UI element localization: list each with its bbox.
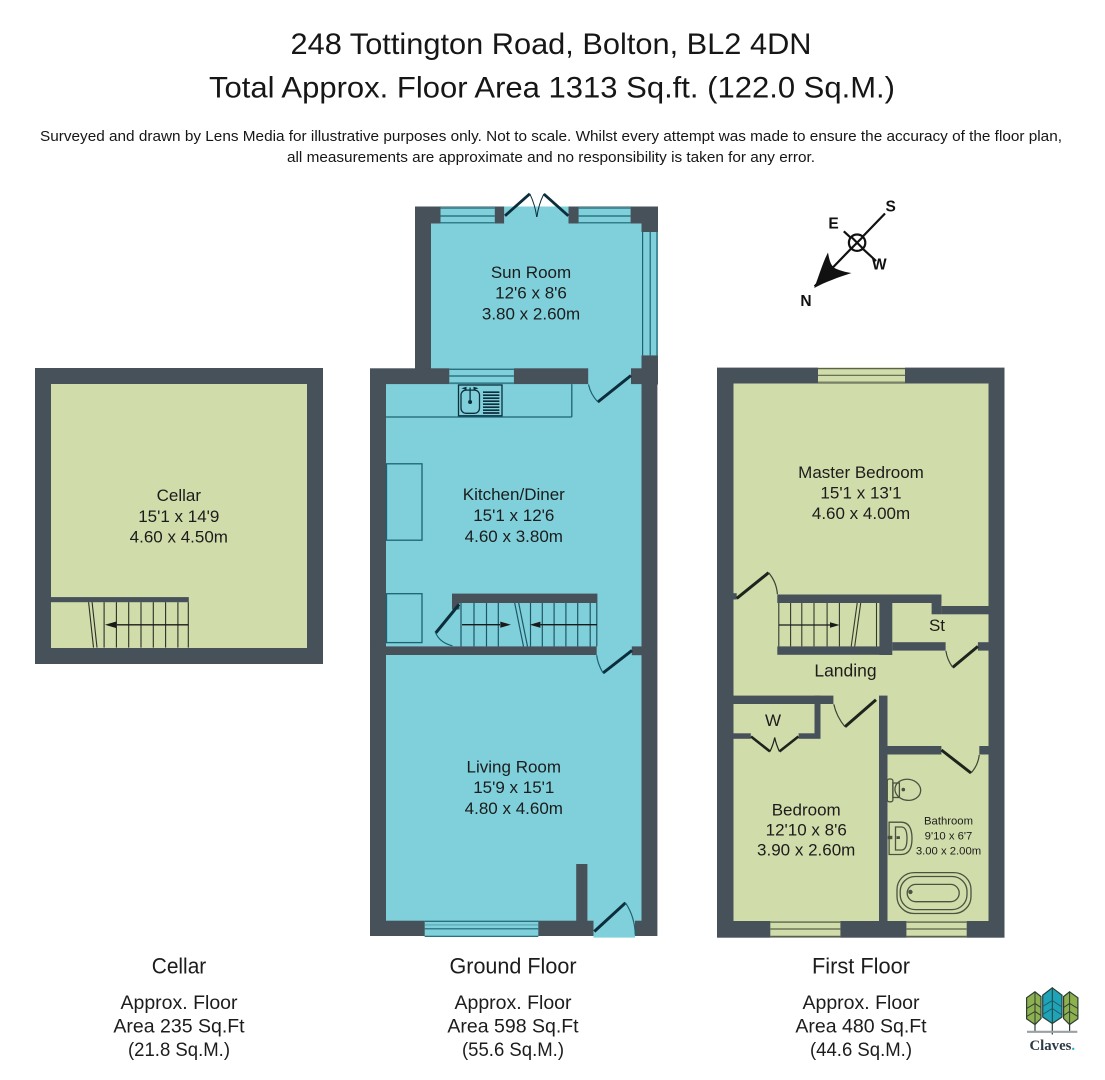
svg-text:3.80 x 2.60m: 3.80 x 2.60m — [482, 304, 580, 323]
svg-text:Master Bedroom: Master Bedroom — [798, 463, 924, 482]
svg-text:9'10 x 6'7: 9'10 x 6'7 — [925, 831, 973, 843]
svg-text:15'1 x 13'1: 15'1 x 13'1 — [820, 484, 901, 503]
svg-text:12'10 x 8'6: 12'10 x 8'6 — [766, 820, 847, 839]
svg-text:First Floor: First Floor — [812, 954, 910, 979]
svg-text:12'6 x 8'6: 12'6 x 8'6 — [495, 284, 567, 303]
svg-text:248 Tottington Road, Bolton, B: 248 Tottington Road, Bolton, BL2 4DN — [291, 28, 812, 61]
svg-text:(21.8 Sq.M.): (21.8 Sq.M.) — [128, 1039, 230, 1061]
svg-text:Cellar: Cellar — [157, 486, 202, 505]
svg-text:15'1 x 12'6: 15'1 x 12'6 — [473, 506, 554, 525]
svg-text:Area 480 Sq.Ft: Area 480 Sq.Ft — [795, 1015, 927, 1037]
svg-text:Area 598 Sq.Ft: Area 598 Sq.Ft — [447, 1015, 579, 1037]
svg-text:15'9 x 15'1: 15'9 x 15'1 — [473, 778, 554, 797]
svg-text:4.60 x 3.80m: 4.60 x 3.80m — [465, 527, 563, 546]
svg-text:4.60 x 4.00m: 4.60 x 4.00m — [812, 504, 910, 523]
svg-text:(55.6 Sq.M.): (55.6 Sq.M.) — [462, 1039, 564, 1061]
svg-text:3.00 x 2.00m: 3.00 x 2.00m — [916, 846, 981, 858]
svg-text:(44.6 Sq.M.): (44.6 Sq.M.) — [810, 1039, 912, 1061]
svg-text:Surveyed and drawn by Lens Med: Surveyed and drawn by Lens Media for ill… — [40, 129, 1062, 145]
svg-text:Claves.: Claves. — [1029, 1038, 1075, 1054]
svg-text:Living Room: Living Room — [467, 758, 562, 777]
svg-text:S: S — [886, 199, 896, 216]
svg-text:Sun Room: Sun Room — [491, 263, 571, 282]
svg-text:N: N — [800, 293, 811, 310]
svg-text:Area 235 Sq.Ft: Area 235 Sq.Ft — [113, 1015, 245, 1037]
svg-text:Approx. Floor: Approx. Floor — [802, 992, 920, 1014]
svg-text:Approx. Floor: Approx. Floor — [120, 992, 238, 1014]
svg-text:Approx. Floor: Approx. Floor — [454, 992, 572, 1014]
svg-text:Kitchen/Diner: Kitchen/Diner — [463, 485, 565, 504]
svg-text:Ground Floor: Ground Floor — [450, 954, 577, 979]
svg-text:Bedroom: Bedroom — [772, 800, 841, 819]
svg-text:4.80 x 4.60m: 4.80 x 4.60m — [465, 799, 563, 818]
svg-text:4.60 x 4.50m: 4.60 x 4.50m — [130, 528, 228, 547]
svg-text:St: St — [929, 616, 945, 635]
svg-text:W: W — [765, 711, 781, 730]
svg-text:Cellar: Cellar — [152, 954, 207, 979]
svg-text:all measurements are approxima: all measurements are approximate and no … — [287, 150, 815, 166]
svg-text:3.90 x 2.60m: 3.90 x 2.60m — [757, 841, 855, 860]
svg-text:Total Approx. Floor Area 1313: Total Approx. Floor Area 1313 Sq.ft. (12… — [209, 72, 895, 105]
svg-text:Bathroom: Bathroom — [924, 816, 973, 828]
svg-text:15'1 x 14'9: 15'1 x 14'9 — [138, 507, 219, 526]
svg-text:W: W — [872, 256, 887, 273]
svg-text:Landing: Landing — [814, 661, 876, 681]
svg-text:E: E — [828, 216, 838, 233]
